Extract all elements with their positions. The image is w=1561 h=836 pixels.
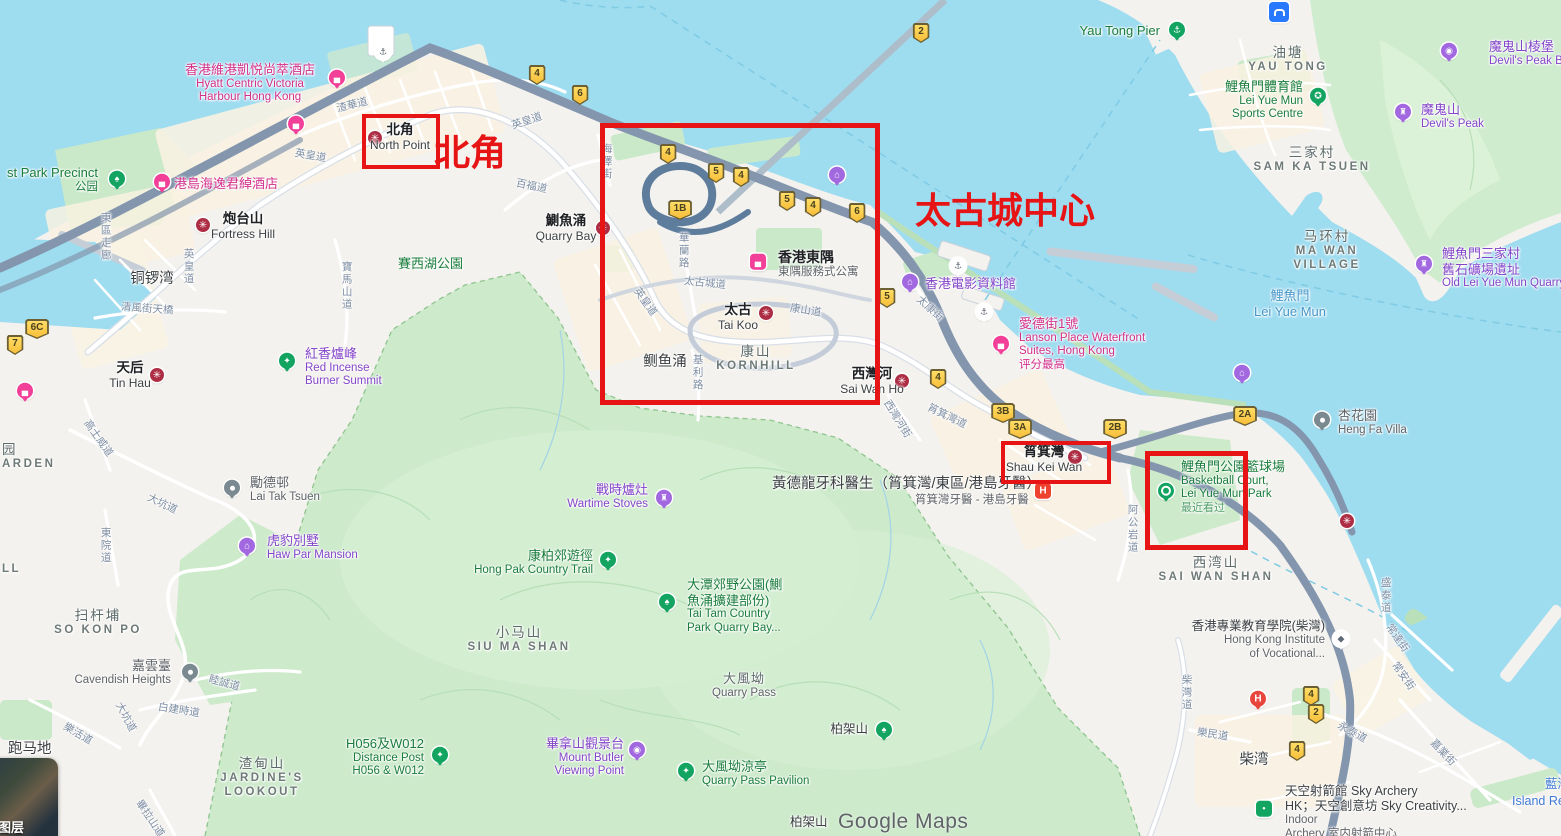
route-shield-text: 5: [880, 290, 894, 307]
label-lanson-place-text: 评分最高: [1019, 359, 1145, 373]
label-ive-chai-wan-text: of Vocational...: [1192, 648, 1325, 662]
label-tin-hau-station-text: Tin Hau: [109, 376, 151, 390]
label-old-quarry-text: 舊石礦場遺址: [1442, 262, 1561, 278]
road-a-kung-ngam: 阿公岩道: [1126, 504, 1139, 554]
label-devils-peak-battery-text: Devil's Peak Battery: [1489, 55, 1561, 69]
label-sam-ka-tsuen-text: SAM KA TSUEN: [1253, 161, 1370, 175]
label-ma-wan-village-text: VILLAGE: [1293, 259, 1360, 273]
label-hong-pak-trail-text: Hong Pak Country Trail: [474, 564, 593, 578]
label-tai-tam-park-text: 大潭郊野公園(鰂: [687, 577, 782, 593]
label-sky-archery-text: Archery 室内射箭中心: [1285, 828, 1467, 836]
ferry-pier-icon[interactable]: ⚓: [1169, 22, 1185, 38]
label-quarry-bay-station[interactable]: 鰂魚涌Quarry Bay: [536, 213, 597, 244]
label-tin-hau-station-text: 天后: [109, 360, 151, 376]
label-lei-yue-mun-water: 鯉魚門Lei Yue Mun: [1254, 288, 1326, 319]
fort-icon[interactable]: ♜: [1416, 256, 1432, 272]
map-viewport[interactable]: 香港維港凱悦尚萃酒店Hyatt Centric VictoriaHarbour …: [0, 0, 1561, 836]
label-cavendish-heights-text: 嘉雲臺: [74, 658, 171, 674]
annotation-text-north-point: 北角: [434, 124, 506, 176]
mtr-station-icon[interactable]: ✳: [150, 368, 164, 382]
route-shield-text: 4: [1304, 688, 1318, 705]
label-yau-tong: 油塘YAU TONG: [1248, 45, 1327, 75]
label-tai-tam-park-text: 魚涌擴建部份): [687, 593, 782, 609]
label-siu-ma-shan-text: 小马山: [467, 625, 570, 641]
label-hill-partial: LL: [2, 563, 21, 577]
label-ive-chai-wan-text: 香港專業教育學院(柴灣): [1192, 619, 1325, 634]
label-so-kon-po: 扫杆埔SO KON PO: [54, 608, 142, 638]
label-haw-par-mansion[interactable]: 虎豹別墅Haw Par Mansion: [267, 533, 358, 562]
label-hong-pak-trail[interactable]: 康柏郊遊徑Hong Pak Country Trail: [474, 548, 593, 577]
label-harbour-grand-text: 港島海逸君綽酒店: [174, 176, 278, 192]
label-hill-partial-text: LL: [2, 563, 21, 577]
label-film-archive-text: 香港電影資料館: [925, 276, 1016, 292]
label-hyatt-centric[interactable]: 香港維港凱悦尚萃酒店Hyatt Centric VictoriaHarbour …: [185, 62, 315, 105]
annotation-text-taikoo-shing-centre: 太古城中心: [915, 182, 1095, 234]
road-island-east-corridor-text: 東區走廊: [99, 212, 112, 262]
hotel-icon[interactable]: ▄: [154, 174, 170, 190]
label-sam-ka-tsuen-text: 三家村: [1253, 145, 1370, 161]
label-dentist-sub-text: 筲箕灣牙醫 - 港島牙醫: [915, 494, 1029, 508]
label-lanson-place-text: 愛德街1號: [1019, 316, 1145, 332]
tree-park-icon[interactable]: ♠: [876, 722, 892, 738]
label-sai-sai-wu-park: 賽西湖公園: [398, 256, 463, 272]
label-sky-archery-text: Indoor: [1285, 814, 1467, 828]
label-tin-hau-station[interactable]: 天后Tin Hau: [109, 360, 151, 391]
label-heng-fa-villa[interactable]: 杏花園Heng Fa Villa: [1338, 408, 1407, 437]
label-siu-ma-shan-text: SIU MA SHAN: [467, 641, 570, 655]
fort-icon[interactable]: ♜: [656, 490, 672, 506]
route-shield-text: 2: [914, 25, 928, 42]
label-sky-archery[interactable]: 天空射箭館 Sky ArcheryHK；天空創意坊 Sky Creativity…: [1285, 784, 1467, 836]
museum-icon[interactable]: ⌂: [239, 538, 255, 554]
label-sai-sai-wu-park-text: 賽西湖公園: [398, 256, 463, 272]
label-garden-partial: 园ARDEN: [2, 442, 55, 472]
label-hong-pak-trail-text: 康柏郊遊徑: [474, 548, 593, 564]
label-lei-yue-mun-water-text: Lei Yue Mun: [1254, 304, 1326, 320]
label-quarry-pass-text: 大風坳: [712, 671, 776, 687]
label-quarry-pass-pavilion[interactable]: 大風坳涼亭Quarry Pass Pavilion: [702, 759, 809, 788]
label-park-precinct-text: 公园: [7, 181, 98, 195]
road-shing-tai: 盛泰道: [1379, 577, 1392, 615]
place-dot-icon[interactable]: [224, 480, 240, 496]
label-yau-tong-pier[interactable]: Yau Tong Pier: [1080, 23, 1160, 39]
label-so-kon-po-text: SO KON PO: [54, 624, 142, 638]
hiking-icon[interactable]: ✦: [678, 763, 694, 779]
label-old-quarry-text: Old Lei Yue Mun Quarry: [1442, 277, 1561, 291]
label-wartime-stoves[interactable]: 戰時爐灶Wartime Stoves: [567, 482, 648, 511]
label-quarry-bay-station-text: Quarry Bay: [536, 229, 597, 243]
label-lym-sports-centre-text: 鯉魚門體育館: [1225, 79, 1303, 95]
label-mount-parker-text: 柏架山: [830, 722, 868, 737]
label-ive-chai-wan[interactable]: 香港專業教育學院(柴灣)Hong Kong Instituteof Vocati…: [1192, 619, 1325, 662]
archery-icon[interactable]: •: [1256, 801, 1272, 817]
route-shield-text: 2A: [1235, 408, 1256, 425]
label-quarry-pass-text: Quarry Pass: [712, 687, 776, 701]
label-devils-peak-text: 魔鬼山: [1421, 102, 1484, 118]
route-shield-text: 4: [530, 67, 544, 84]
label-island-resort-en[interactable]: Island Res: [1512, 794, 1561, 809]
place-dot-icon[interactable]: [182, 664, 198, 680]
label-distance-post-text: Distance Post: [346, 752, 424, 766]
label-heng-fa-villa-text: Heng Fa Villa: [1338, 424, 1407, 438]
road-island-east-corridor: 東區走廊: [99, 212, 112, 262]
label-sai-wan-shan: 西湾山SAI WAN SHAN: [1159, 555, 1274, 585]
ferry-pier-icon[interactable]: ⚓: [950, 258, 966, 274]
annotation-box-north-point: [362, 114, 440, 169]
label-island-resort-en-text: Island Res: [1512, 794, 1561, 809]
label-garden-partial-text: ARDEN: [2, 458, 55, 472]
hotel-icon[interactable]: ▄: [993, 336, 1009, 352]
label-causeway-bay-text: 铜锣湾: [130, 271, 174, 288]
road-a-kung-ngam-text: 阿公岩道: [1126, 504, 1139, 554]
road-chai-wan-rd: 柴灣道: [1180, 674, 1193, 712]
label-chai-wan: 柴湾: [1240, 752, 1269, 769]
label-sai-wan-shan-text: 西湾山: [1159, 555, 1274, 571]
mtr-station-icon[interactable]: ✳: [196, 218, 210, 232]
fort-icon[interactable]: ♜: [1395, 104, 1411, 120]
label-devils-peak-battery-text: 魔鬼山棱堡: [1489, 39, 1561, 55]
camera-icon[interactable]: ◉: [629, 742, 645, 758]
label-fortress-hill-station-text: Fortress Hill: [211, 227, 275, 241]
hiking-icon[interactable]: ✦: [432, 747, 448, 763]
label-lai-tak-tsuen[interactable]: 勵德邨Lai Tak Tsuen: [250, 475, 320, 504]
annotation-box-taikoo-area: [600, 123, 880, 405]
label-distance-post-text: H056 & W012: [346, 765, 424, 779]
label-island-resort-cn[interactable]: 藍灣: [1545, 777, 1561, 792]
road-braemar-hill-text: 寶馬山道: [340, 261, 353, 311]
route-shield-text: 2: [1309, 706, 1323, 723]
label-quarry-bay-station-text: 鰂魚涌: [536, 213, 597, 229]
label-happy-valley: 跑马地: [8, 741, 52, 758]
label-park-precinct-text: st Park Precinct: [7, 165, 98, 181]
hotel-icon[interactable]: ▄: [17, 383, 33, 399]
label-devils-peak-text: Devil's Peak: [1421, 118, 1484, 132]
label-tai-tam-park[interactable]: 大潭郊野公園(鰂魚涌擴建部份)Tai Tam CountryPark Quarr…: [687, 577, 782, 636]
label-yau-tong-pier-text: Yau Tong Pier: [1080, 23, 1160, 39]
label-dentist-sub[interactable]: 筲箕灣牙醫 - 港島牙醫: [915, 494, 1029, 508]
label-film-archive[interactable]: 香港電影資料館: [925, 276, 1016, 292]
label-devils-peak-battery[interactable]: 魔鬼山棱堡Devil's Peak Battery: [1489, 39, 1561, 68]
label-haw-par-mansion-text: 虎豹別墅: [267, 533, 358, 549]
label-sam-ka-tsuen: 三家村SAM KA TSUEN: [1253, 145, 1370, 175]
label-cavendish-heights[interactable]: 嘉雲臺Cavendish Heights: [74, 658, 171, 687]
route-shield-text: 4: [1290, 743, 1304, 760]
label-mount-butler-viewpoint-text: Viewing Point: [546, 765, 624, 779]
label-sky-archery-text: 天空射箭館 Sky Archery: [1285, 784, 1467, 799]
label-yau-tong-text: YAU TONG: [1248, 61, 1327, 75]
place-dot-icon[interactable]: [1314, 412, 1330, 428]
camera-icon[interactable]: ◉: [1441, 43, 1457, 59]
google-maps-watermark: Google Maps: [838, 810, 968, 834]
label-park-precinct[interactable]: st Park Precinct公园: [7, 165, 98, 194]
label-heng-fa-villa-text: 杏花園: [1338, 408, 1407, 424]
label-distance-post[interactable]: H056及W012Distance PostH056 & W012: [346, 736, 424, 779]
ferry-pier-icon[interactable]: ⚓: [976, 304, 992, 320]
museum-icon[interactable]: ⌂: [1234, 365, 1250, 381]
label-lym-sports-centre[interactable]: 鯉魚門體育館Lei Yue MunSports Centre: [1225, 79, 1303, 122]
label-mount-parker-partial: 柏架山: [790, 815, 828, 830]
label-quarry-pass-pavilion-text: 大風坳涼亭: [702, 759, 809, 775]
route-shield-text: 6C: [27, 321, 48, 338]
label-lanson-place[interactable]: 愛德街1號Lanson Place WaterfrontSuites, Hong…: [1019, 316, 1145, 373]
label-lym-sports-centre-text: Lei Yue Mun: [1225, 95, 1303, 109]
label-fortress-hill-station-text: 炮台山: [211, 211, 275, 227]
label-lanson-place-text: Suites, Hong Kong: [1019, 345, 1145, 359]
route-shield-text: 6: [573, 87, 587, 104]
label-quarry-pass: 大風坳Quarry Pass: [712, 671, 776, 700]
road-tung-yuen-text: 東院道: [99, 527, 112, 565]
label-sai-wan-shan-text: SAI WAN SHAN: [1159, 571, 1274, 585]
label-lym-sports-centre-text: Sports Centre: [1225, 108, 1303, 122]
mtr-station-icon[interactable]: ✳: [1340, 514, 1354, 528]
label-wartime-stoves-text: Wartime Stoves: [567, 498, 648, 512]
label-cavendish-heights-text: Cavendish Heights: [74, 674, 171, 688]
road-braemar-hill: 寶馬山道: [340, 261, 353, 311]
layers-button[interactable]: ◈ 图层: [0, 758, 58, 836]
road-chai-wan-rd-text: 柴灣道: [1180, 674, 1193, 712]
hiking-icon[interactable]: ✦: [600, 552, 616, 568]
road-shing-tai-text: 盛泰道: [1379, 577, 1392, 615]
label-lanson-place-text: Lanson Place Waterfront: [1019, 332, 1145, 346]
label-hyatt-centric-text: Hyatt Centric Victoria: [185, 78, 315, 92]
label-yau-tong-text: 油塘: [1248, 45, 1327, 61]
label-wartime-stoves-text: 戰時爐灶: [567, 482, 648, 498]
route-shield-text: 3B: [993, 405, 1014, 422]
label-so-kon-po-text: 扫杆埔: [54, 608, 142, 624]
road-kings-road-v: 英皇道: [182, 248, 195, 286]
label-red-incense-summit-text: Burner Summit: [305, 375, 382, 389]
museum-icon[interactable]: ⌂: [902, 274, 918, 290]
route-shield-text: 3A: [1010, 421, 1031, 438]
label-causeway-bay: 铜锣湾: [130, 271, 174, 288]
label-jardines-lookout-text: 渣甸山: [220, 756, 303, 772]
sports-centre-icon[interactable]: ✪: [1310, 88, 1326, 104]
annotation-box-shau-kei-wan: [1001, 441, 1111, 484]
label-mount-parker-partial-text: 柏架山: [790, 815, 828, 830]
route-shield-text: 2B: [1105, 421, 1126, 438]
label-island-resort-cn-text: 藍灣: [1545, 777, 1561, 792]
ferry-pier-icon[interactable]: ⚓: [375, 44, 391, 60]
lock-icon[interactable]: [1269, 2, 1289, 22]
hospital-icon[interactable]: H: [1250, 691, 1266, 707]
label-ma-wan-village: 马环村MA WANVILLAGE: [1293, 229, 1360, 273]
tree-park-icon[interactable]: ♠: [109, 171, 125, 187]
hotel-icon[interactable]: ▄: [288, 116, 304, 132]
label-jardines-lookout-text: LOOKOUT: [220, 786, 303, 800]
label-siu-ma-shan: 小马山SIU MA SHAN: [467, 625, 570, 655]
label-ma-wan-village-text: 马环村: [1293, 229, 1360, 245]
label-old-quarry-text: 鯉魚門三家村: [1442, 246, 1561, 262]
route-shield-text: 4: [931, 371, 945, 388]
hotel-icon[interactable]: ▄: [329, 70, 345, 86]
label-red-incense-summit[interactable]: 紅香爐峰Red IncenseBurner Summit: [305, 346, 382, 389]
label-red-incense-summit-text: 紅香爐峰: [305, 346, 382, 362]
label-haw-par-mansion-text: Haw Par Mansion: [267, 549, 358, 563]
label-jardines-lookout-text: JARDINE'S: [220, 772, 303, 786]
label-sky-archery-text: HK；天空創意坊 Sky Creativity...: [1285, 799, 1467, 814]
label-fortress-hill-station[interactable]: 炮台山Fortress Hill: [211, 211, 275, 242]
label-hyatt-centric-text: Harbour Hong Kong: [185, 91, 315, 105]
label-happy-valley-text: 跑马地: [8, 741, 52, 758]
label-jardines-lookout: 渣甸山JARDINE'SLOOKOUT: [220, 756, 303, 800]
layers-label: 图层: [0, 817, 24, 836]
label-ive-chai-wan-text: Hong Kong Institute: [1192, 634, 1325, 648]
label-chai-wan-text: 柴湾: [1240, 752, 1269, 769]
label-devils-peak[interactable]: 魔鬼山Devil's Peak: [1421, 102, 1484, 131]
road-tung-yuen: 東院道: [99, 527, 112, 565]
label-mount-butler-viewpoint-text: Mount Butler: [546, 752, 624, 766]
label-lai-tak-tsuen-text: 勵德邨: [250, 475, 320, 491]
label-quarry-pass-pavilion-text: Quarry Pass Pavilion: [702, 775, 809, 789]
tree-park-icon[interactable]: ♠: [659, 594, 675, 610]
label-garden-partial-text: 园: [2, 442, 55, 458]
road-kings-road-v-text: 英皇道: [182, 248, 195, 286]
label-old-quarry[interactable]: 鯉魚門三家村舊石礦場遺址Old Lei Yue Mun Quarry: [1442, 246, 1561, 291]
label-distance-post-text: H056及W012: [346, 736, 424, 752]
label-tai-tam-park-text: Park Quarry Bay...: [687, 622, 782, 636]
label-tai-tam-park-text: Tai Tam Country: [687, 608, 782, 622]
label-mount-butler-viewpoint[interactable]: 畢拿山觀景台Mount ButlerViewing Point: [546, 736, 624, 779]
label-hyatt-centric-text: 香港維港凱悦尚萃酒店: [185, 62, 315, 78]
annotation-box-basketball-court: [1145, 451, 1248, 550]
label-lei-yue-mun-water-text: 鯉魚門: [1254, 288, 1326, 304]
label-lai-tak-tsuen-text: Lai Tak Tsuen: [250, 491, 320, 505]
label-harbour-grand[interactable]: 港島海逸君綽酒店: [174, 176, 278, 192]
hiking-icon[interactable]: ✦: [279, 353, 295, 369]
label-red-incense-summit-text: Red Incense: [305, 362, 382, 376]
label-mount-butler-viewpoint-text: 畢拿山觀景台: [546, 736, 624, 752]
label-ma-wan-village-text: MA WAN: [1293, 245, 1360, 259]
label-mount-parker: 柏架山: [830, 722, 868, 737]
school-icon[interactable]: ◆: [1333, 631, 1349, 647]
route-shield-text: 7: [8, 337, 22, 354]
